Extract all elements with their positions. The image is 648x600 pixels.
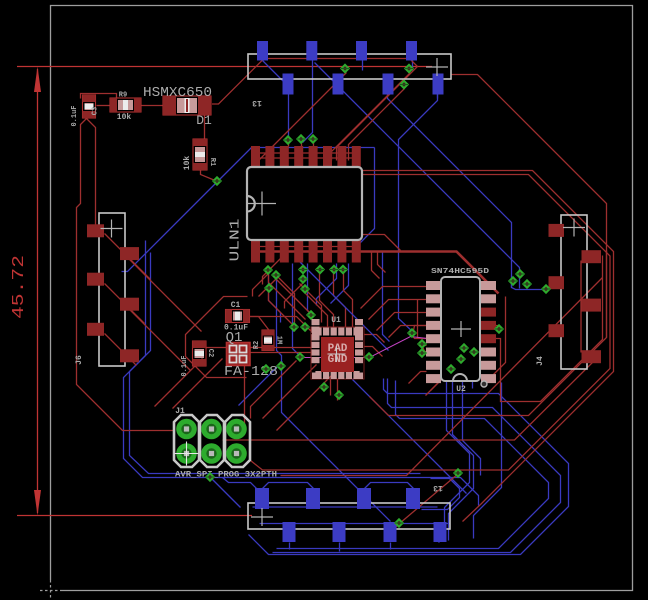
svg-text:0.1uF: 0.1uF [181, 355, 189, 376]
svg-text:J1: J1 [175, 407, 185, 416]
svg-text:U1: U1 [331, 316, 341, 325]
svg-text:HSMXC650: HSMXC650 [143, 85, 212, 101]
svg-text:FA-128: FA-128 [224, 365, 278, 380]
svg-text:10k: 10k [117, 113, 132, 122]
svg-text:10k: 10k [183, 156, 192, 171]
svg-text:0.1uF: 0.1uF [71, 105, 79, 126]
svg-text:C1: C1 [231, 301, 241, 310]
svg-text:C3: C3 [92, 107, 100, 115]
svg-text:R1: R1 [208, 158, 216, 166]
svg-text:ULN1: ULN1 [229, 219, 244, 262]
svg-text:SN74HC595D: SN74HC595D [431, 268, 490, 276]
svg-text:45.72: 45.72 [10, 255, 29, 319]
svg-text:GND: GND [328, 354, 348, 366]
svg-text:R9: R9 [119, 92, 127, 100]
svg-text:Q1: Q1 [226, 330, 243, 346]
svg-text:J4: J4 [536, 356, 545, 366]
svg-text:13: 13 [252, 98, 262, 107]
svg-text:AVR_SPI_PROG_3X2PTH: AVR_SPI_PROG_3X2PTH [175, 471, 277, 480]
svg-text:D1: D1 [196, 113, 212, 128]
svg-text:13: 13 [433, 483, 443, 492]
svg-text:J6: J6 [75, 355, 84, 365]
svg-text:C2: C2 [206, 349, 214, 357]
svg-text:R2: R2 [253, 341, 261, 349]
svg-text:U2: U2 [456, 385, 466, 394]
svg-text:1M: 1M [275, 336, 283, 344]
